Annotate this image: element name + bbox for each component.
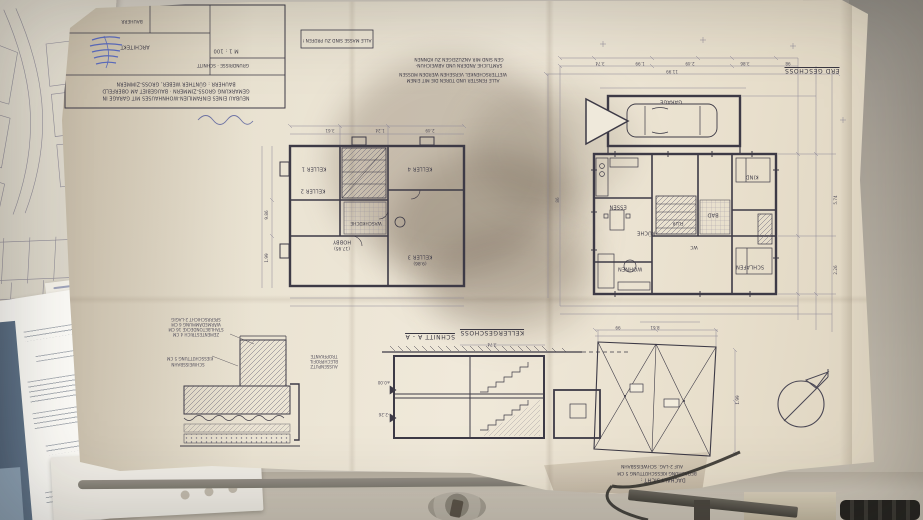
dim-label: 9.86 [265,210,269,219]
caption-dach: DACHAUFSICHT : [640,477,685,482]
photo-scene: NEUBAU EINES EINFAMILIEN-WOHNHAUSES MIT … [0,0,923,520]
plan-kellergeschoss [280,137,464,286]
detail-layer-label: ZEMENTESTRICH 4 CM [173,332,219,336]
room-label-kueche: KÜCHE [637,230,655,235]
construction-detail [180,334,300,446]
roof-plan [594,342,716,456]
caption-kellergeschoss: KELLERGESCHOSS [460,329,524,335]
dim-label: 2.49 [425,128,434,132]
dim-label: 11.99 [666,69,678,73]
room-label-keller4: KELLER 4 [407,166,432,171]
dim-label: 3.74 [487,342,496,346]
detail-layer-label: SCHWEISSBAHN [171,362,204,366]
level-mark: ±0.00 [378,380,391,384]
architect-stamp [90,36,122,68]
room-label-essen: ESSEN [609,204,626,209]
caption-schnitt: SCHNITT A - A [405,333,455,339]
room-label-wc: WC [690,244,697,248]
bauherr-label: BAUHERR [121,18,142,22]
dim-label: 5.74 [834,195,838,204]
dim-label: 2.49 [685,61,694,65]
blueprint-sheet: NEUBAU EINES EINFAMILIEN-WOHNHAUSES MIT … [0,0,923,520]
detail-layer-label: TROPFKANTE [311,354,338,358]
caption-erdgeschoss: ERD GESCHOSS [785,67,840,73]
room-label-bad: BAD [707,212,718,217]
detail-layer-label: SPERRSCHICHT 2-LAGIG [171,317,221,321]
dim-label: 3.74 [595,61,604,65]
dim-label: 1.24 [375,128,384,132]
section-schnitt [382,346,630,438]
note-line: SÄMTLICHE ÄNDERN UND ABWEICHUN- [416,62,503,66]
room-area-hobby: (17.95) [334,245,350,249]
level-mark: -2.26 [379,412,390,416]
room-label-flur: FLUR [672,220,683,224]
drawing-caption: GRUNDRISSE · SCHNITT [197,62,249,66]
room-label-keller3: KELLER 3 [407,254,432,259]
dark-equipment [840,500,920,520]
punch-hole [180,490,189,499]
detail-layer-label: BLECHPROFIL [310,359,338,363]
dim-label: 99 [615,325,620,329]
detail-layer-label: AUSSENPUTZ [310,364,337,368]
room-label-keller2: KELLER 2 [300,188,325,193]
room-area-keller3: (9.86) [413,260,426,264]
project-title-line: BAUHERR : GÜNTHER WEBER, GROSS-ZIMMERN [116,80,235,85]
roof-note-line: AUF 2-LAG. SCHWEISSBAHN [621,463,683,467]
dim-label: 2.26 [834,265,838,274]
note-check-dimensions: ALLE MASSE SIND ZU PRÜFEN ! [302,37,371,41]
roof-note-line: BEDACHUNG KIESSCHÜTTUNG 5 CM [617,470,696,474]
room-label-schlafen: SCHLAFEN [736,264,764,269]
dim-label: 3.61 [325,128,334,132]
project-title-line: GEMARKUNG GROSS-ZIMMERN · BAUGEBIET AM O… [102,87,249,92]
note-line: WETTERSCHENKEL VERSEHEN WERDEN MÜSSEN [399,71,507,75]
room-label-hobby: HOBBY [333,239,351,244]
dim-label: 8.61 [650,325,659,329]
detail-layer-label: WÄRMEDÄMMUNG 6 CM [171,322,220,326]
project-title-line: NEUBAU EINES EINFAMILIEN-WOHNHAUSES MIT … [102,94,249,99]
note-line: ALLE FENSTER UND TÜREN DIE MIT EINEM [407,77,500,81]
dim-label: 98 [785,61,790,65]
dim-label: 1.99 [635,61,644,65]
room-label-keller1: KELLER 1 [301,166,326,171]
dim-label: 1.99 [736,395,740,404]
dim-label: 3.86 [740,61,749,65]
dim-label: 1.99 [265,253,269,262]
detail-layer-label: STAHLBETONDECKE 16 CM [168,327,223,331]
desk-frame-leg [694,500,710,520]
dim-label: 86 [556,197,560,202]
north-symbol [778,369,828,427]
blue-folder-edge [0,467,24,520]
note-line: GEN SIND MIR ANZUZEIGEN ZU KÖNNEN [414,56,503,60]
room-label-garage: GARAGE [660,99,682,104]
scale-label: M 1 : 100 [213,48,238,53]
handwritten-annotation [198,116,253,125]
detail-layer-label: KIESSCHÜTTUNG 5 CM [167,356,213,360]
room-label-waschkueche: WASCHKÜCHE [350,220,381,224]
room-label-kind: KIND [745,174,758,179]
punch-hole [204,487,213,496]
room-label-wohnen: WOHNEN [618,266,642,271]
architect-label: ARCHITEKT [120,44,149,49]
